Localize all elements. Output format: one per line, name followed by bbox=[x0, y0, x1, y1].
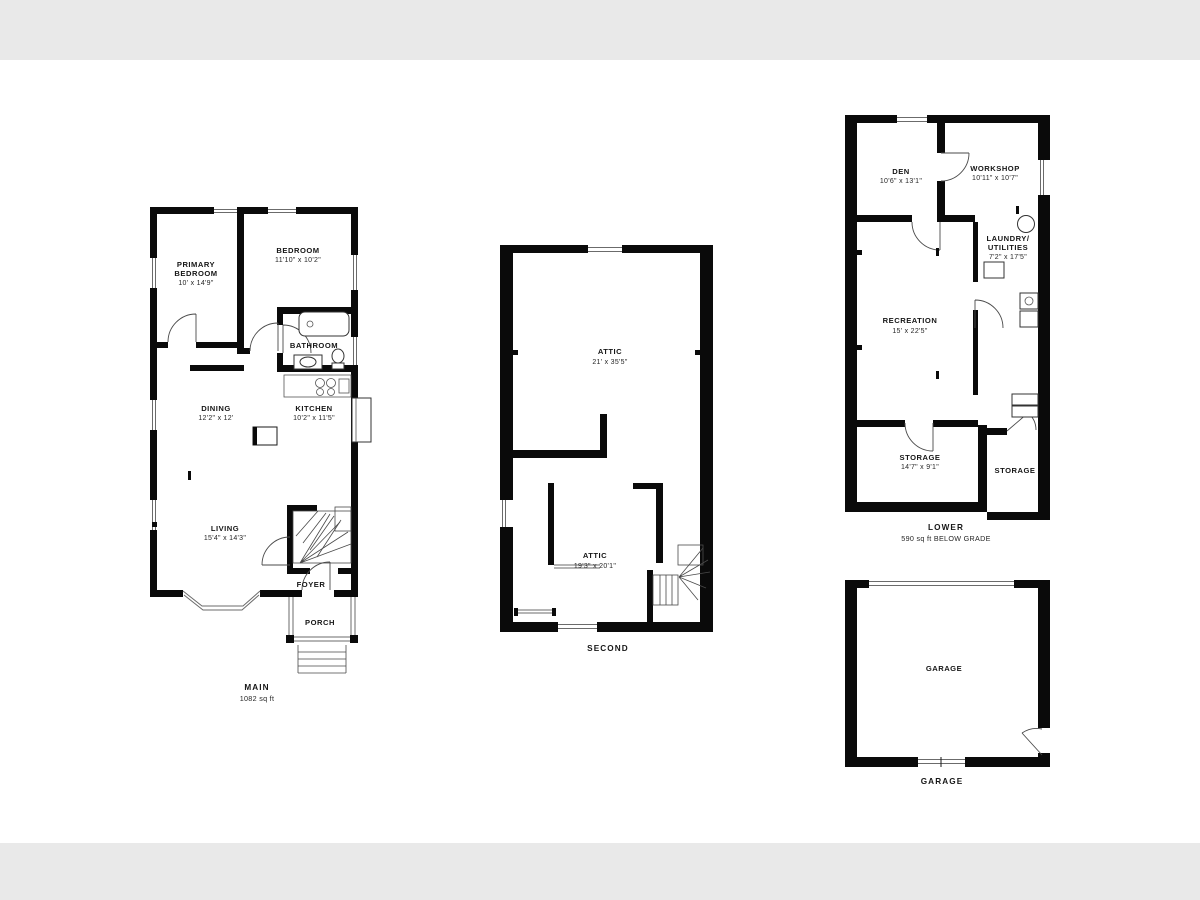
second-floor-caption: SECOND bbox=[587, 644, 629, 653]
refrigerator bbox=[352, 398, 371, 442]
room-label-porch: PORCH bbox=[305, 618, 335, 627]
stairs-main bbox=[293, 507, 351, 563]
lower-caption: LOWER 590 sq ft BELOW GRADE bbox=[901, 523, 990, 543]
svg-text:19'3" x 20'1": 19'3" x 20'1" bbox=[574, 563, 617, 570]
svg-text:14'7" x 9'1": 14'7" x 9'1" bbox=[901, 464, 939, 471]
garage-caption: GARAGE bbox=[921, 777, 964, 786]
room-label-foyer: FOYER bbox=[297, 580, 326, 589]
main-floor-caption: MAIN bbox=[244, 683, 269, 692]
room-label-garage: GARAGE bbox=[926, 664, 962, 673]
svg-text:21' x 35'5": 21' x 35'5" bbox=[592, 359, 628, 366]
second-room-labels: ATTIC 21' x 35'5" ATTIC 19'3" x 20'1" bbox=[574, 347, 628, 570]
svg-text:10'2" x 11'5": 10'2" x 11'5" bbox=[293, 415, 335, 422]
room-label-den: DEN bbox=[892, 167, 910, 176]
svg-text:BEDROOM: BEDROOM bbox=[174, 269, 217, 278]
room-label-attic-lower: ATTIC bbox=[583, 551, 607, 560]
kitchen-counter bbox=[284, 375, 351, 397]
room-label-primary-bedroom: PRIMARY bbox=[177, 260, 215, 269]
room-label-living: LIVING bbox=[211, 524, 239, 533]
svg-text:7'2" x 17'5": 7'2" x 17'5" bbox=[989, 254, 1027, 261]
svg-text:10' x 14'9": 10' x 14'9" bbox=[178, 280, 214, 287]
svg-text:12'2" x 12': 12'2" x 12' bbox=[198, 415, 233, 422]
lower-level-caption: LOWER bbox=[928, 523, 964, 532]
porch-steps bbox=[298, 645, 346, 673]
top-letterbox-band bbox=[0, 0, 1200, 60]
toilet bbox=[332, 349, 344, 369]
room-label-kitchen: KITCHEN bbox=[295, 404, 332, 413]
svg-text:UTILITIES: UTILITIES bbox=[988, 243, 1028, 252]
floorplan-sheet: PRIMARY BEDROOM 10' x 14'9" BEDROOM 11'1… bbox=[0, 0, 1200, 900]
water-heater bbox=[1016, 206, 1035, 233]
svg-text:10'6" x 13'1": 10'6" x 13'1" bbox=[880, 178, 923, 185]
svg-text:15' x 22'5": 15' x 22'5" bbox=[892, 328, 928, 335]
room-label-workshop: WORKSHOP bbox=[970, 164, 1020, 173]
main-caption: MAIN 1082 sq ft bbox=[240, 683, 275, 703]
lower-room-labels: DEN 10'6" x 13'1" WORKSHOP 10'11" x 10'7… bbox=[880, 164, 1036, 475]
room-label-laundry: LAUNDRY/ bbox=[987, 234, 1030, 243]
room-label-recreation: RECREATION bbox=[883, 316, 938, 325]
svg-text:15'4" x 14'3": 15'4" x 14'3" bbox=[204, 535, 247, 542]
lower-level-area: 590 sq ft BELOW GRADE bbox=[901, 534, 990, 543]
bathtub bbox=[299, 312, 349, 336]
room-label-storage2: STORAGE bbox=[995, 466, 1036, 475]
garage-walls bbox=[845, 580, 1050, 767]
garage-plan: GARAGE GARAGE bbox=[835, 570, 1065, 800]
room-label-storage: STORAGE bbox=[900, 453, 941, 462]
kitchen-island bbox=[253, 427, 277, 445]
svg-text:10'11" x 10'7": 10'11" x 10'7" bbox=[972, 175, 1018, 182]
room-label-bedroom: BEDROOM bbox=[276, 246, 319, 255]
second-floor-plan: ATTIC 21' x 35'5" ATTIC 19'3" x 20'1" SE… bbox=[490, 230, 730, 660]
svg-text:11'10" x 10'2": 11'10" x 10'2" bbox=[275, 257, 321, 264]
main-floor-plan: PRIMARY BEDROOM 10' x 14'9" BEDROOM 11'1… bbox=[140, 195, 390, 695]
second-interior-walls bbox=[513, 414, 663, 568]
utility-shelves bbox=[1012, 394, 1038, 417]
lower-level-plan: DEN 10'6" x 13'1" WORKSHOP 10'11" x 10'7… bbox=[835, 105, 1065, 555]
bottom-letterbox-band bbox=[0, 843, 1200, 900]
bay-window bbox=[183, 591, 260, 610]
garage-windows bbox=[869, 582, 1014, 768]
utility-sink bbox=[1020, 293, 1038, 327]
lower-exterior-walls bbox=[845, 115, 1050, 520]
main-floor-area: 1082 sq ft bbox=[240, 694, 275, 703]
garage-side-door bbox=[1022, 728, 1042, 755]
room-label-dining: DINING bbox=[201, 404, 231, 413]
washer bbox=[984, 262, 1004, 278]
wall-break-symbol bbox=[857, 248, 939, 379]
room-label-attic-upper: ATTIC bbox=[598, 347, 622, 356]
bathroom-sink bbox=[294, 355, 322, 369]
room-label-bathroom: BATHROOM bbox=[290, 341, 338, 350]
wall-break-symbol bbox=[152, 471, 191, 527]
